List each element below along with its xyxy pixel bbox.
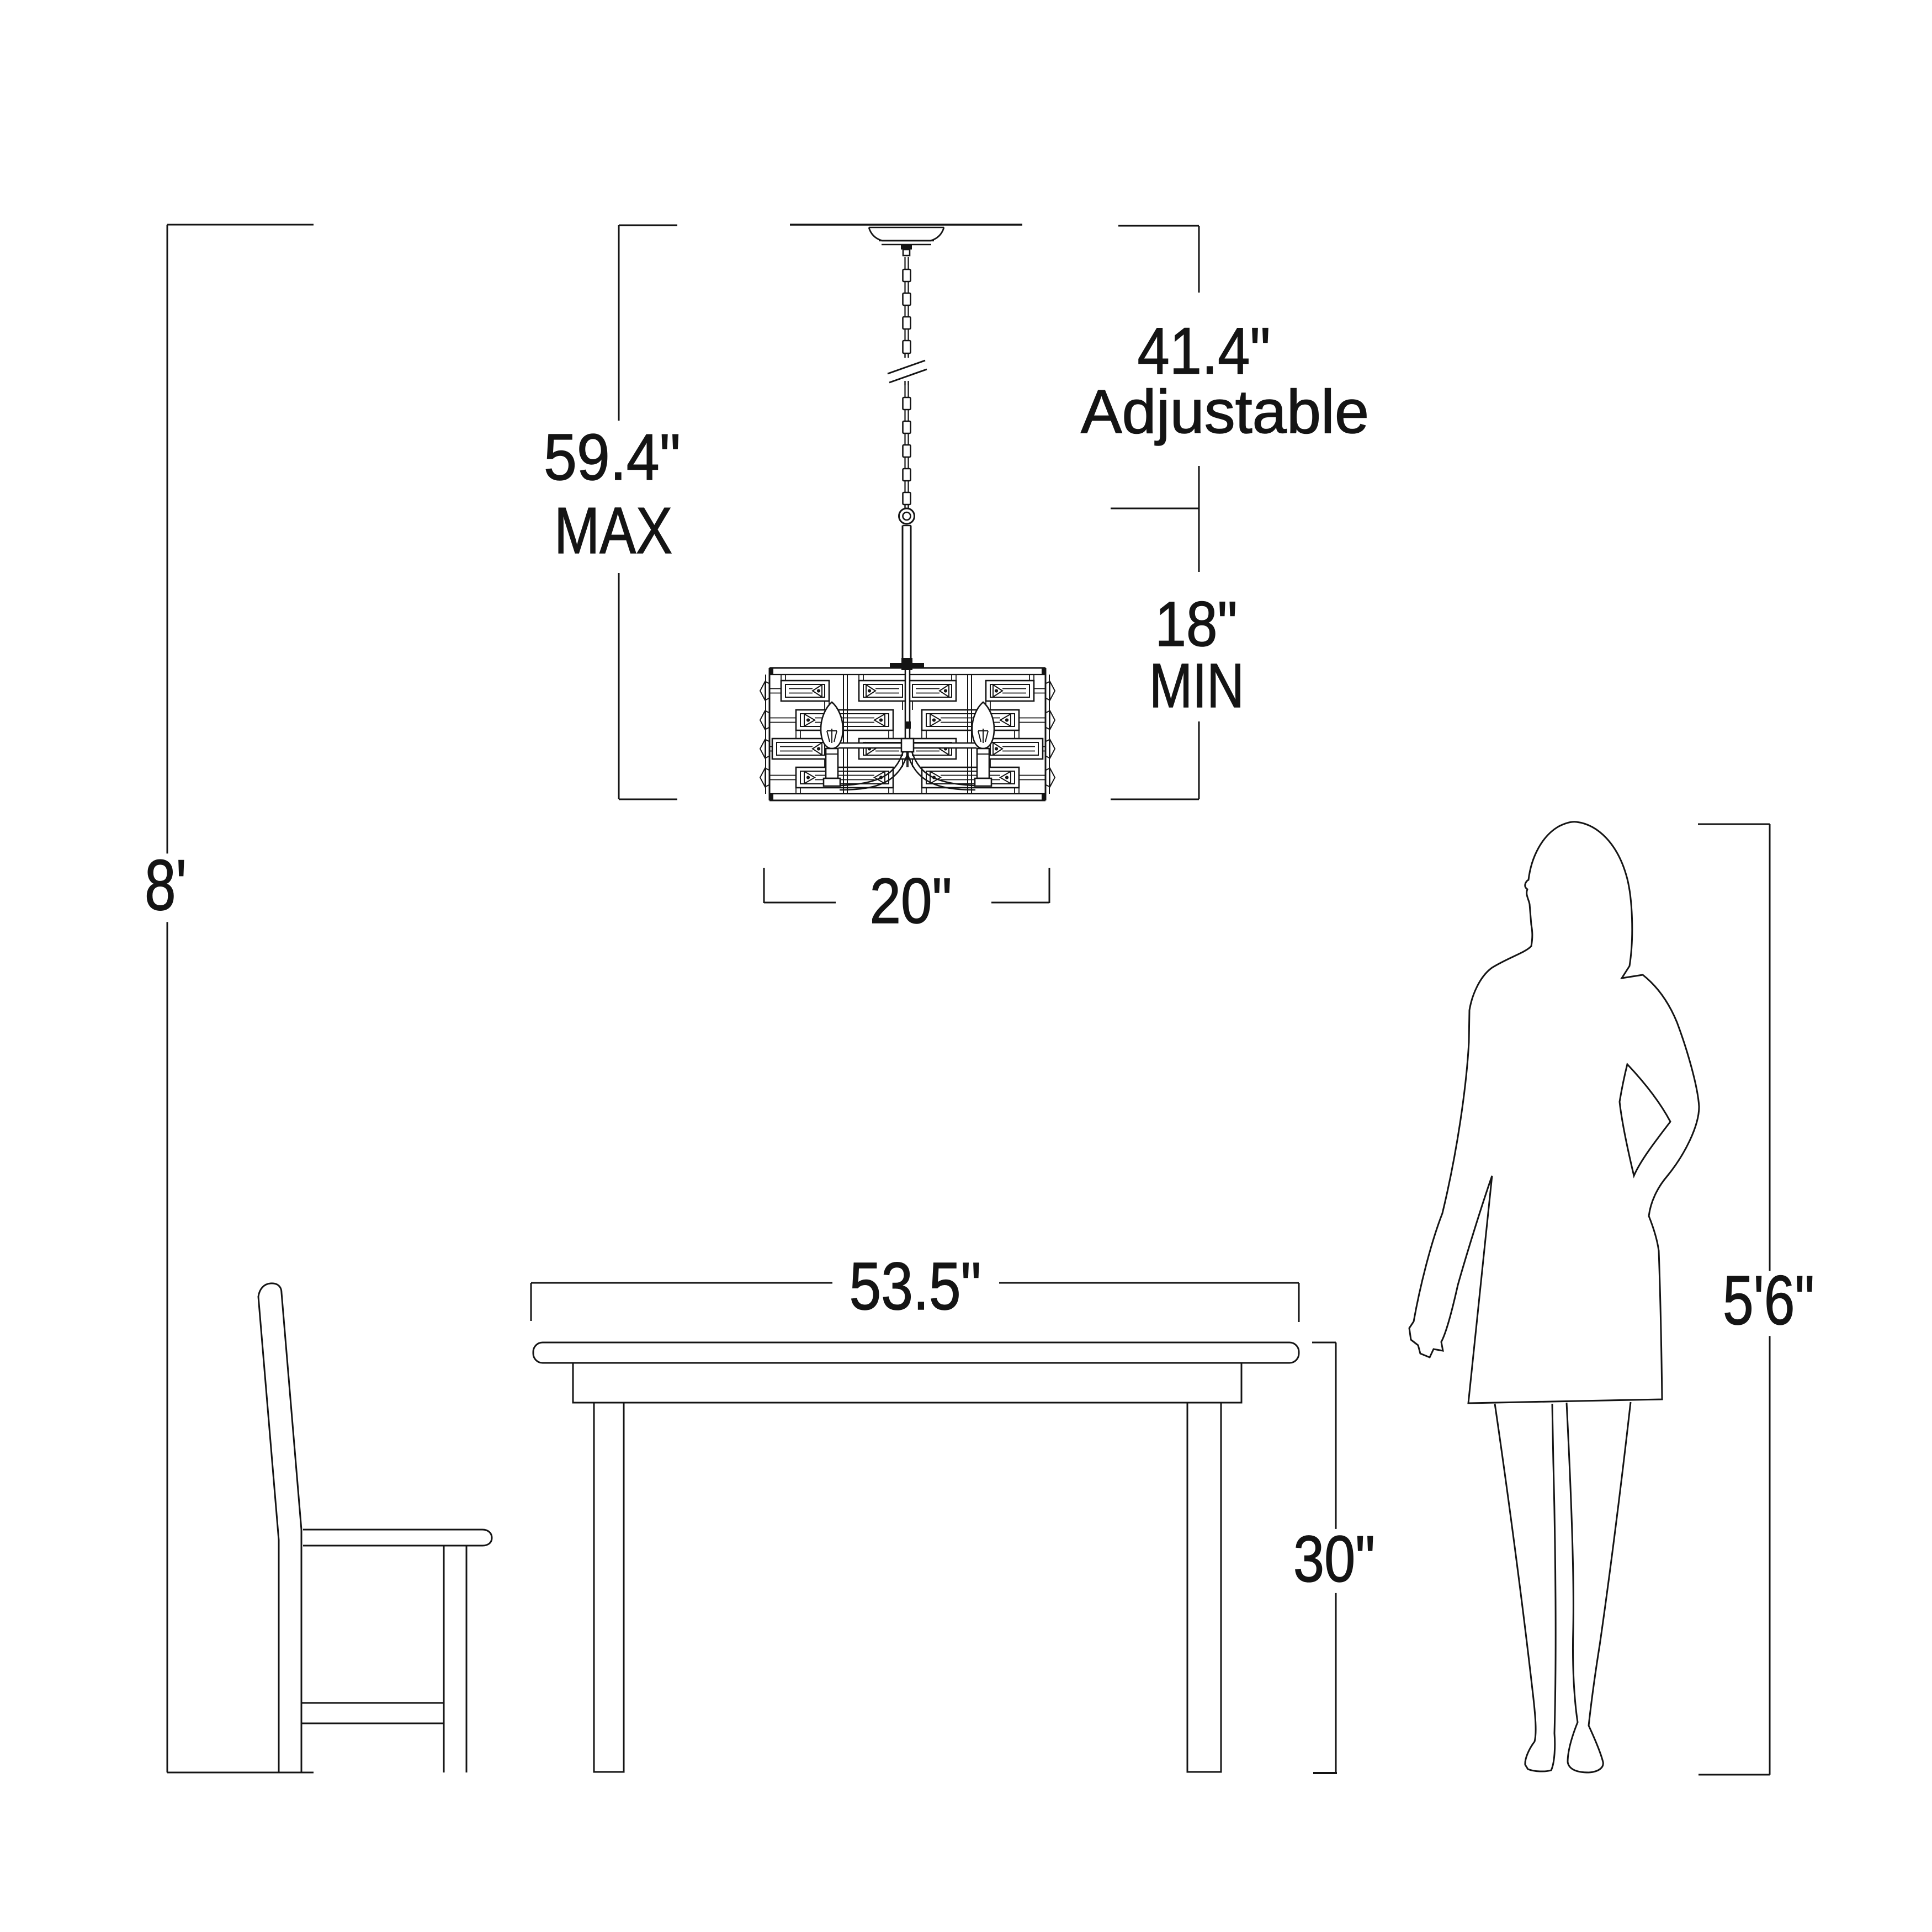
svg-text:8': 8' xyxy=(145,845,187,925)
svg-text:20": 20" xyxy=(870,865,952,937)
svg-text:MIN: MIN xyxy=(1149,651,1244,720)
svg-text:41.4": 41.4" xyxy=(1138,314,1271,388)
svg-text:5'6": 5'6" xyxy=(1723,1261,1814,1339)
svg-text:18": 18" xyxy=(1155,589,1238,660)
svg-text:59.4": 59.4" xyxy=(544,421,681,494)
svg-text:30": 30" xyxy=(1293,1522,1375,1596)
svg-text:Adjustable: Adjustable xyxy=(1081,378,1369,446)
svg-text:53.5": 53.5" xyxy=(850,1249,981,1324)
svg-text:MAX: MAX xyxy=(554,494,672,567)
